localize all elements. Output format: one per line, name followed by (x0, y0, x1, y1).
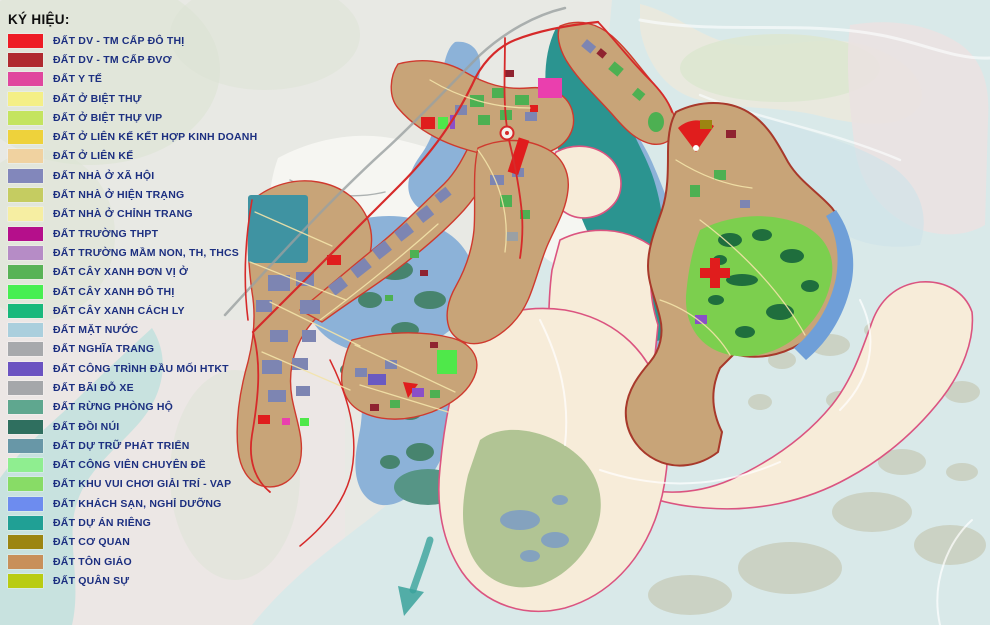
legend-swatch (8, 362, 43, 376)
legend-label: ĐẤT NHÀ Ở CHỈNH TRANG (53, 208, 193, 220)
legend-item: ĐẤT TRƯỜNG THPT (8, 224, 257, 243)
legend-label: ĐẤT DỰ ÁN RIÊNG (53, 517, 151, 529)
legend-swatch (8, 516, 43, 530)
legend-item: ĐẤT DV - TM CẤP ĐÔ THỊ (8, 31, 257, 50)
legend-swatch (8, 149, 43, 163)
legend-label: ĐẤT CÔNG TRÌNH ĐẦU MỐI HTKT (53, 363, 229, 375)
legend-label: ĐẤT Ở LIÊN KẾ (53, 150, 133, 162)
legend-item: ĐẤT CƠ QUAN (8, 533, 257, 552)
legend-label: ĐẤT CÂY XANH CÁCH LY (53, 305, 185, 317)
legend-label: ĐẤT BÃI ĐỖ XE (53, 382, 134, 394)
legend-swatch (8, 555, 43, 569)
legend-label: ĐẤT TÔN GIÁO (53, 556, 132, 568)
legend-swatch (8, 169, 43, 183)
legend-swatch (8, 34, 43, 48)
legend-swatch (8, 53, 43, 67)
legend-swatch (8, 207, 43, 221)
legend-swatch (8, 227, 43, 241)
legend-item: ĐẤT Ở BIỆT THỰ (8, 89, 257, 108)
legend-item: ĐẤT Ở LIÊN KẾ KẾT HỢP KINH DOANH (8, 127, 257, 146)
legend-item: ĐẤT CÂY XANH CÁCH LY (8, 301, 257, 320)
legend-label: ĐẤT KHÁCH SẠN, NGHỈ DƯỠNG (53, 498, 222, 510)
legend-item: ĐẤT Ở LIÊN KẾ (8, 147, 257, 166)
legend-swatch (8, 497, 43, 511)
legend-item: ĐẤT QUÂN SỰ (8, 571, 257, 590)
legend-label: ĐẤT Ở BIỆT THỰ VIP (53, 112, 162, 124)
legend-swatch (8, 439, 43, 453)
legend-swatch (8, 111, 43, 125)
legend-label: ĐẤT QUÂN SỰ (53, 575, 129, 587)
legend-label: ĐẤT TRƯỜNG MẦM NON, TH, THCS (53, 247, 239, 259)
legend-swatch (8, 265, 43, 279)
legend-label: ĐẤT ĐỒI NÚI (53, 421, 119, 433)
legend-swatch (8, 458, 43, 472)
legend-item: ĐẤT CÂY XANH ĐÔ THỊ (8, 282, 257, 301)
legend-item: ĐẤT NHÀ Ở CHỈNH TRANG (8, 205, 257, 224)
legend-item: ĐẤT TÔN GIÁO (8, 552, 257, 571)
legend-item: ĐẤT DV - TM CẤP ĐVƠ (8, 50, 257, 69)
legend-swatch (8, 92, 43, 106)
legend-items: ĐẤT DV - TM CẤP ĐÔ THỊĐẤT DV - TM CẤP ĐV… (8, 31, 257, 591)
legend-label: ĐẤT KHU VUI CHƠI GIẢI TRÍ - VAP (53, 478, 231, 490)
legend-item: ĐẤT CÂY XANH ĐƠN VỊ Ở (8, 263, 257, 282)
legend-item: ĐẤT Y TẾ (8, 70, 257, 89)
legend-label: ĐẤT NGHĨA TRANG (53, 343, 154, 355)
legend-item: ĐẤT TRƯỜNG MẦM NON, TH, THCS (8, 243, 257, 262)
legend-item: ĐẤT KHU VUI CHƠI GIẢI TRÍ - VAP (8, 475, 257, 494)
legend-item: ĐẤT BÃI ĐỖ XE (8, 378, 257, 397)
legend-label: ĐẤT NHÀ Ở XÃ HỘI (53, 170, 154, 182)
legend-label: ĐẤT CƠ QUAN (53, 536, 130, 548)
legend-item: ĐẤT DỰ TRỮ PHÁT TRIỂN (8, 436, 257, 455)
legend-swatch (8, 400, 43, 414)
legend-item: ĐẤT NHÀ Ở XÃ HỘI (8, 166, 257, 185)
legend: KÝ HIỆU: ĐẤT DV - TM CẤP ĐÔ THỊĐẤT DV - … (8, 12, 257, 591)
legend-swatch (8, 130, 43, 144)
legend-swatch (8, 420, 43, 434)
planning-map-screenshot: KÝ HIỆU: ĐẤT DV - TM CẤP ĐÔ THỊĐẤT DV - … (0, 0, 990, 625)
legend-item: ĐẤT MẶT NƯỚC (8, 320, 257, 339)
legend-item: ĐẤT Ở BIỆT THỰ VIP (8, 108, 257, 127)
legend-swatch (8, 323, 43, 337)
legend-label: ĐẤT NHÀ Ở HIỆN TRẠNG (53, 189, 184, 201)
legend-item: ĐẤT CÔNG TRÌNH ĐẦU MỐI HTKT (8, 359, 257, 378)
legend-label: ĐẤT DV - TM CẤP ĐVƠ (53, 54, 172, 66)
legend-title: KÝ HIỆU: (8, 12, 257, 27)
legend-label: ĐẤT Ở LIÊN KẾ KẾT HỢP KINH DOANH (53, 131, 257, 143)
legend-swatch (8, 381, 43, 395)
legend-label: ĐẤT DỰ TRỮ PHÁT TRIỂN (53, 440, 190, 452)
legend-label: ĐẤT CÔNG VIÊN CHUYÊN ĐỀ (53, 459, 206, 471)
legend-label: ĐẤT TRƯỜNG THPT (53, 228, 158, 240)
legend-label: ĐẤT MẶT NƯỚC (53, 324, 138, 336)
legend-label: ĐẤT Ở BIỆT THỰ (53, 93, 142, 105)
legend-label: ĐẤT DV - TM CẤP ĐÔ THỊ (53, 35, 184, 47)
legend-swatch (8, 246, 43, 260)
legend-label: ĐẤT CÂY XANH ĐƠN VỊ Ở (53, 266, 188, 278)
legend-label: ĐẤT RỪNG PHÒNG HỘ (53, 401, 173, 413)
legend-swatch (8, 342, 43, 356)
legend-item: ĐẤT KHÁCH SẠN, NGHỈ DƯỠNG (8, 494, 257, 513)
legend-item: ĐẤT RỪNG PHÒNG HỘ (8, 398, 257, 417)
legend-label: ĐẤT CÂY XANH ĐÔ THỊ (53, 286, 174, 298)
legend-swatch (8, 574, 43, 588)
legend-swatch (8, 285, 43, 299)
legend-item: ĐẤT CÔNG VIÊN CHUYÊN ĐỀ (8, 456, 257, 475)
legend-item: ĐẤT DỰ ÁN RIÊNG (8, 513, 257, 532)
legend-item: ĐẤT ĐỒI NÚI (8, 417, 257, 436)
legend-item: ĐẤT NGHĨA TRANG (8, 340, 257, 359)
legend-swatch (8, 72, 43, 86)
legend-swatch (8, 304, 43, 318)
legend-swatch (8, 477, 43, 491)
legend-item: ĐẤT NHÀ Ở HIỆN TRẠNG (8, 185, 257, 204)
legend-swatch (8, 535, 43, 549)
legend-label: ĐẤT Y TẾ (53, 73, 102, 85)
legend-swatch (8, 188, 43, 202)
